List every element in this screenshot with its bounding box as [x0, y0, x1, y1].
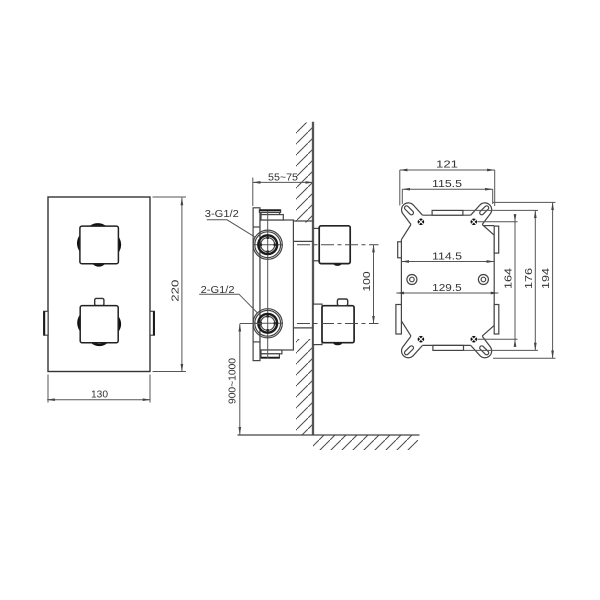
svg-text:176: 176: [524, 267, 535, 289]
svg-text:115.5: 115.5: [432, 179, 463, 190]
svg-text:121: 121: [436, 160, 459, 171]
svg-text:3-G1/2: 3-G1/2: [205, 209, 239, 220]
svg-text:164: 164: [504, 267, 515, 289]
svg-text:220: 220: [170, 279, 181, 302]
svg-text:114.5: 114.5: [432, 251, 463, 262]
svg-text:130: 130: [91, 390, 108, 401]
svg-text:129.5: 129.5: [432, 283, 462, 294]
svg-text:55~75: 55~75: [268, 172, 298, 183]
svg-text:194: 194: [541, 267, 552, 289]
svg-text:100: 100: [362, 271, 373, 292]
svg-text:900~1000: 900~1000: [227, 358, 238, 404]
